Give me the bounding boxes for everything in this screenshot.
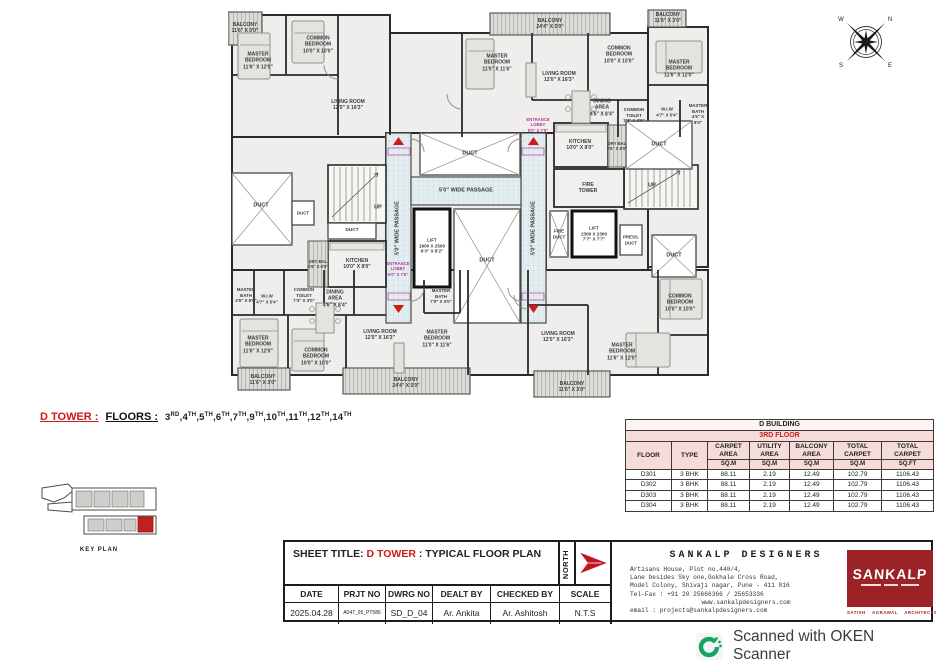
duct-label: DUCT (297, 210, 309, 216)
floors-label: FLOORS : (105, 411, 158, 423)
unit-cell: SQ.M (834, 460, 882, 470)
key-plan-label: KEY PLAN (34, 547, 164, 553)
balcony-label: BALCONY 24'4" X 5'0" (536, 18, 563, 31)
toilet-label: COMMON TOILET 7'3" X 3'0" (293, 287, 314, 304)
fire-tower-label: FIRE TOWER (579, 182, 598, 195)
wiw-label: W.I.W 4'7" X 5'4" (256, 294, 277, 305)
dry-balcony-label: DRY BAL 2'6" X 8'0" (607, 141, 627, 152)
header-dwrg: DWRG NO (386, 586, 433, 603)
unit-cell: SQ.M (790, 460, 834, 470)
table-cell: 102.79 (834, 480, 882, 490)
firm-logo-tagline (847, 584, 933, 586)
table-cell: 88.11 (708, 469, 750, 479)
compass-rose: N E S W (824, 6, 910, 80)
lift-label: LIFT 1900 X 2500 6'3" X 8'2" (419, 237, 445, 254)
table-row: D3013 BHK88.112.1912.49102.791106.43 (626, 469, 934, 479)
floor-item: 9TH (249, 412, 266, 423)
col-header: TOTALCARPET (834, 442, 882, 460)
header-dealt: DEALT BY (433, 586, 491, 603)
bedroom-label: MASTER BEDROOM 11'6" X 12'0" (243, 52, 273, 71)
firm-name: SANKALP DESIGNERS (636, 550, 856, 561)
balcony-label: BALCONY 24'4" X 5'0" (392, 377, 419, 390)
bath-label: MASTER BATH 4'5" X 8'0" (235, 287, 256, 304)
table-cell: 102.79 (834, 501, 882, 511)
firm-telfax: Tel-Fax : +91 20 25666366 / 25653336 (630, 591, 862, 599)
floors-list: 3RD4TH5TH6TH7TH9TH10TH11TH12TH14TH (165, 412, 352, 423)
value-prjt: A047_05_PT586 (339, 603, 386, 624)
col-header-type: TYPE (672, 442, 708, 470)
passage-label: 5'0" WIDE PASSAGE (531, 201, 538, 255)
table-cell: 2.19 (750, 469, 790, 479)
duct-label: DUCT (666, 253, 681, 260)
floors-line: D TOWER : FLOORS : 3RD4TH5TH6TH7TH9TH10T… (40, 411, 352, 423)
dining-label: DINING AREA 4'6" X 8'4" (590, 99, 614, 118)
sheet-title-label: SHEET TITLE: (293, 548, 364, 560)
north-label: NORTH (561, 550, 570, 579)
firm-website: www.sankalpdesigners.com (630, 599, 862, 607)
svg-text:S: S (839, 63, 843, 69)
table-cell: 88.11 (708, 480, 750, 490)
unit-cell: SQ.M (750, 460, 790, 470)
value-dealt: Ar. Ankita (433, 603, 491, 624)
lift-label: LIFT 2300 X 2300 7'7" X 7'7" (581, 225, 607, 242)
title-block: SHEET TITLE: D TOWER : TYPICAL FLOOR PLA… (283, 540, 933, 622)
svg-text:E: E (888, 63, 892, 69)
floor-item: 10TH (266, 412, 288, 423)
bedroom-label: COMMON BEDROOM 10'0" X 10'0" (604, 46, 634, 65)
kitchen-label: KITCHEN 10'0" X 8'0" (343, 258, 370, 271)
sheet-title-rest: : TYPICAL FLOOR PLAN (419, 548, 541, 560)
value-date: 2025.04.28 (285, 603, 339, 624)
table-row: D3023 BHK88.112.1912.49102.791106.43 (626, 480, 934, 490)
header-prjt: PRJT NO (339, 586, 386, 603)
stairs-up-label: UP (374, 205, 382, 212)
north-arrow-icon (576, 542, 610, 584)
duct-label: DUCT (253, 203, 268, 210)
bedroom-label: MASTER BEDROOM 11'0" X 11'6" (482, 54, 511, 73)
key-plan: KEY PLAN (34, 476, 164, 553)
balcony-label: BALCONY 11'6" X 3'0" (559, 381, 586, 394)
floor-item: 4TH (182, 412, 199, 423)
firm-address: Artisans House, Plot no.440/4, Lane besi… (630, 566, 862, 615)
floor-item: 3RD (165, 412, 182, 423)
table-cell: 2.19 (750, 490, 790, 500)
floor-item: 14TH (332, 412, 351, 423)
header-date: DATE (285, 586, 339, 603)
area-table-body: D3013 BHK88.112.1912.49102.791106.43D302… (626, 469, 934, 511)
svg-text:W: W (838, 17, 844, 23)
passage-label: 5'0" WIDE PASSAGE (439, 188, 493, 195)
firm-address-line: Lane besides Sky one,Gokhale Cross Road, (630, 574, 862, 582)
floor-item: 5TH (199, 412, 216, 423)
unit-cell: SQ.M (708, 460, 750, 470)
sheet-title: SHEET TITLE: D TOWER : TYPICAL FLOOR PLA… (285, 542, 560, 586)
duct-label: DUCT (345, 228, 358, 234)
col-header-floor: FLOOR (626, 442, 672, 470)
bedroom-label: MASTER BEDROOM 11'6" X 12'0" (664, 60, 694, 79)
oken-scanner-icon (696, 633, 723, 660)
table-cell: 2.19 (750, 480, 790, 490)
col-header: TOTALCARPET (882, 442, 934, 460)
bath-label: MASTER BATH 7'0" X 3'0" (430, 288, 451, 305)
plan-labels: BALCONY 24'4" X 5'0"MASTER BEDROOM 11'0"… (228, 5, 710, 401)
value-dwrg: SD_D_04 (386, 603, 433, 624)
bedroom-label: COMMON BEDROOM 10'0" X 10'0" (303, 36, 333, 55)
entrance-lobby-label: ENTRANCE LOBBY 5'0" X 7'5" (526, 117, 549, 133)
table-row: D3043 BHK88.112.1912.49102.791106.43 (626, 501, 934, 511)
table-cell: 3 BHK (672, 480, 708, 490)
header-checked: CHECKED BY (491, 586, 560, 603)
key-plan-highlight (138, 517, 153, 532)
bedroom-label: MASTER BEDROOM 11'0" X 11'6" (422, 330, 451, 349)
col-header: BALCONYAREA (790, 442, 834, 460)
table-cell: D301 (626, 469, 672, 479)
floor-item: 11TH (288, 412, 310, 423)
north-arrow-cell (576, 542, 612, 586)
duct-label: DUCT (651, 142, 666, 149)
firm-logo: SANKALP (847, 550, 933, 607)
living-room-label: LIVING ROOM 12'0" X 16'3" (541, 331, 575, 344)
header-scale: SCALE (560, 586, 612, 603)
table-cell: 12.49 (790, 469, 834, 479)
fire-duct-label: FIRE DUCT (553, 228, 566, 239)
svg-text:N: N (888, 17, 892, 23)
living-room-label: LIVING ROOM 12'0" X 16'3" (363, 329, 397, 342)
table-cell: D304 (626, 501, 672, 511)
table-title: D BUILDING (626, 420, 934, 431)
table-cell: 102.79 (834, 469, 882, 479)
floor-item: 6TH (216, 412, 233, 423)
table-cell: 3 BHK (672, 469, 708, 479)
table-cell: 88.11 (708, 501, 750, 511)
entrance-lobby-label: ENTRANCE LOBBY 5'0" X 7'5" (386, 261, 409, 277)
kitchen-label: KITCHEN 10'0" X 8'0" (566, 139, 593, 152)
north-compass-icon: N E S W (824, 6, 910, 80)
bedroom-label: MASTER BEDROOM 11'6" X 12'0" (607, 343, 637, 362)
firm-address-line: Model Colony, Shivaji nagar, Pune - 411 … (630, 582, 862, 590)
table-cell: 1106.43 (882, 501, 934, 511)
dry-balcony-label: DRY BAL 2'6" X 8'0" (308, 259, 328, 270)
bath-label: MASTER BATH 4'5" X 8'0" (689, 103, 708, 125)
col-header: CARPETAREA (708, 442, 750, 460)
balcony-label: BALCONY 11'6" X 3'0" (655, 12, 682, 25)
key-plan-drawing (34, 476, 164, 540)
firm-address-line: Artisans House, Plot no.440/4, (630, 566, 862, 574)
duct-label: PRESS. DUCT (623, 235, 639, 246)
wiw-label: W.I.W 4'7" X 5'4" (656, 107, 677, 118)
living-room-label: LIVING ROOM 12'0" X 16'3" (542, 71, 576, 84)
table-cell: 1106.43 (882, 490, 934, 500)
table-cell: D302 (626, 480, 672, 490)
oken-footer-text: Scanned with OKEN Scanner (733, 628, 936, 664)
table-cell: 1106.43 (882, 469, 934, 479)
table-cell: 12.49 (790, 501, 834, 511)
north-cell: NORTH (560, 542, 576, 586)
table-cell: 2.19 (750, 501, 790, 511)
balcony-label: BALCONY 11'6" X 3'0" (232, 22, 259, 35)
table-cell: 88.11 (708, 490, 750, 500)
col-header: UTILITYAREA (750, 442, 790, 460)
table-cell: 12.49 (790, 480, 834, 490)
stairs-up-label: UP (648, 183, 656, 190)
value-checked: Ar. Ashitosh (491, 603, 560, 624)
floor-item: 12TH (310, 412, 332, 423)
floor-plan: BALCONY 24'4" X 5'0"MASTER BEDROOM 11'0"… (228, 5, 710, 401)
value-scale: N.T.S (560, 603, 612, 624)
duct-label: DUCT (462, 151, 477, 158)
duct-label: DUCT (479, 258, 494, 265)
table-cell: 1106.43 (882, 480, 934, 490)
oken-footer: Scanned with OKEN Scanner (696, 628, 936, 664)
table-cell: 3 BHK (672, 501, 708, 511)
table-row: D3033 BHK88.112.1912.49102.791106.43 (626, 490, 934, 500)
tower-label: D TOWER : (40, 411, 98, 423)
table-cell: 3 BHK (672, 490, 708, 500)
table-cell: D303 (626, 490, 672, 500)
firm-logo-subtext: SATISH AGRAWAL ARCHITECTS (847, 610, 933, 615)
dining-label: DINING AREA 4'6" X 8'4" (323, 290, 347, 309)
bedroom-label: COMMON BEDROOM 10'0" X 10'0" (665, 294, 695, 313)
area-table: D BUILDING 3RD FLOOR FLOOR TYPE CARPETAR… (625, 419, 934, 512)
firm-email: email : projects@sankalpdesigners.com (630, 607, 862, 615)
living-room-label: LIVING ROOM 12'0" X 16'3" (331, 99, 365, 112)
floor-item: 7TH (233, 412, 250, 423)
balcony-label: BALCONY 11'6" X 3'0" (250, 374, 277, 387)
table-subtitle: 3RD FLOOR (626, 431, 934, 442)
toilet-label: COMMON TOILET 7'3" X 3'0" (623, 107, 644, 124)
unit-cell: SQ.FT (882, 460, 934, 470)
table-cell: 102.79 (834, 490, 882, 500)
firm-logo-text: SANKALP (846, 566, 933, 582)
sheet-title-tower: D TOWER (367, 548, 416, 560)
table-cell: 12.49 (790, 490, 834, 500)
bedroom-label: COMMON BEDROOM 10'0" X 10'0" (301, 348, 331, 367)
bedroom-label: MASTER BEDROOM 11'6" X 12'0" (243, 336, 273, 355)
passage-label: 5'0" WIDE PASSAGE (395, 201, 402, 255)
